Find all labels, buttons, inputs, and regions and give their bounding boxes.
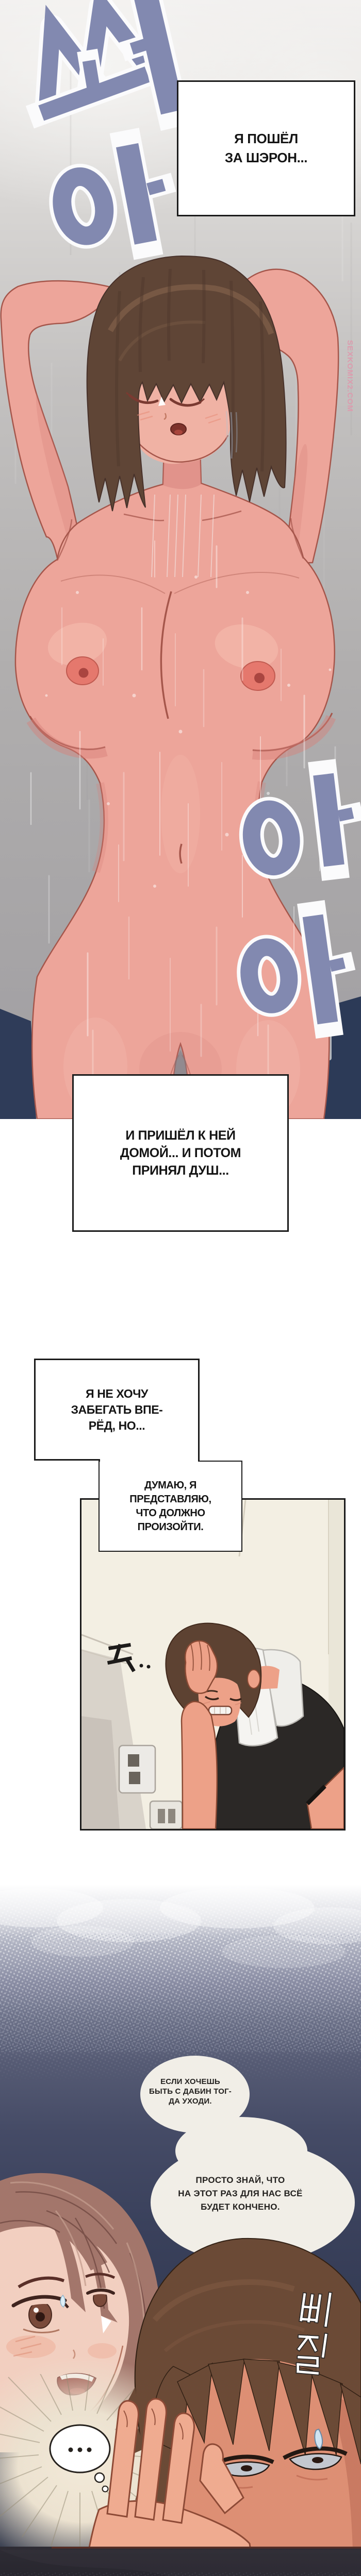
svg-text:БЫТЬ С ДАБИН ТОГ-: БЫТЬ С ДАБИН ТОГ-	[149, 2087, 232, 2096]
svg-text:ПРОСТО ЗНАЙ, ЧТО: ПРОСТО ЗНАЙ, ЧТО	[195, 2175, 285, 2185]
svg-text:НА ЭТОТ РАЗ ДЛЯ НАС ВСЁ: НА ЭТОТ РАЗ ДЛЯ НАС ВСЁ	[178, 2189, 302, 2198]
svg-text:ЕСЛИ ХОЧЕШЬ: ЕСЛИ ХОЧЕШЬ	[160, 2077, 220, 2086]
svg-text:ДА УХОДИ.: ДА УХОДИ.	[169, 2097, 212, 2106]
svg-text:БУДЕТ КОНЧЕНО.: БУДЕТ КОНЧЕНО.	[201, 2202, 280, 2212]
svg-text:SEXKOMIX2.COM: SEXKOMIX2.COM	[346, 340, 354, 412]
